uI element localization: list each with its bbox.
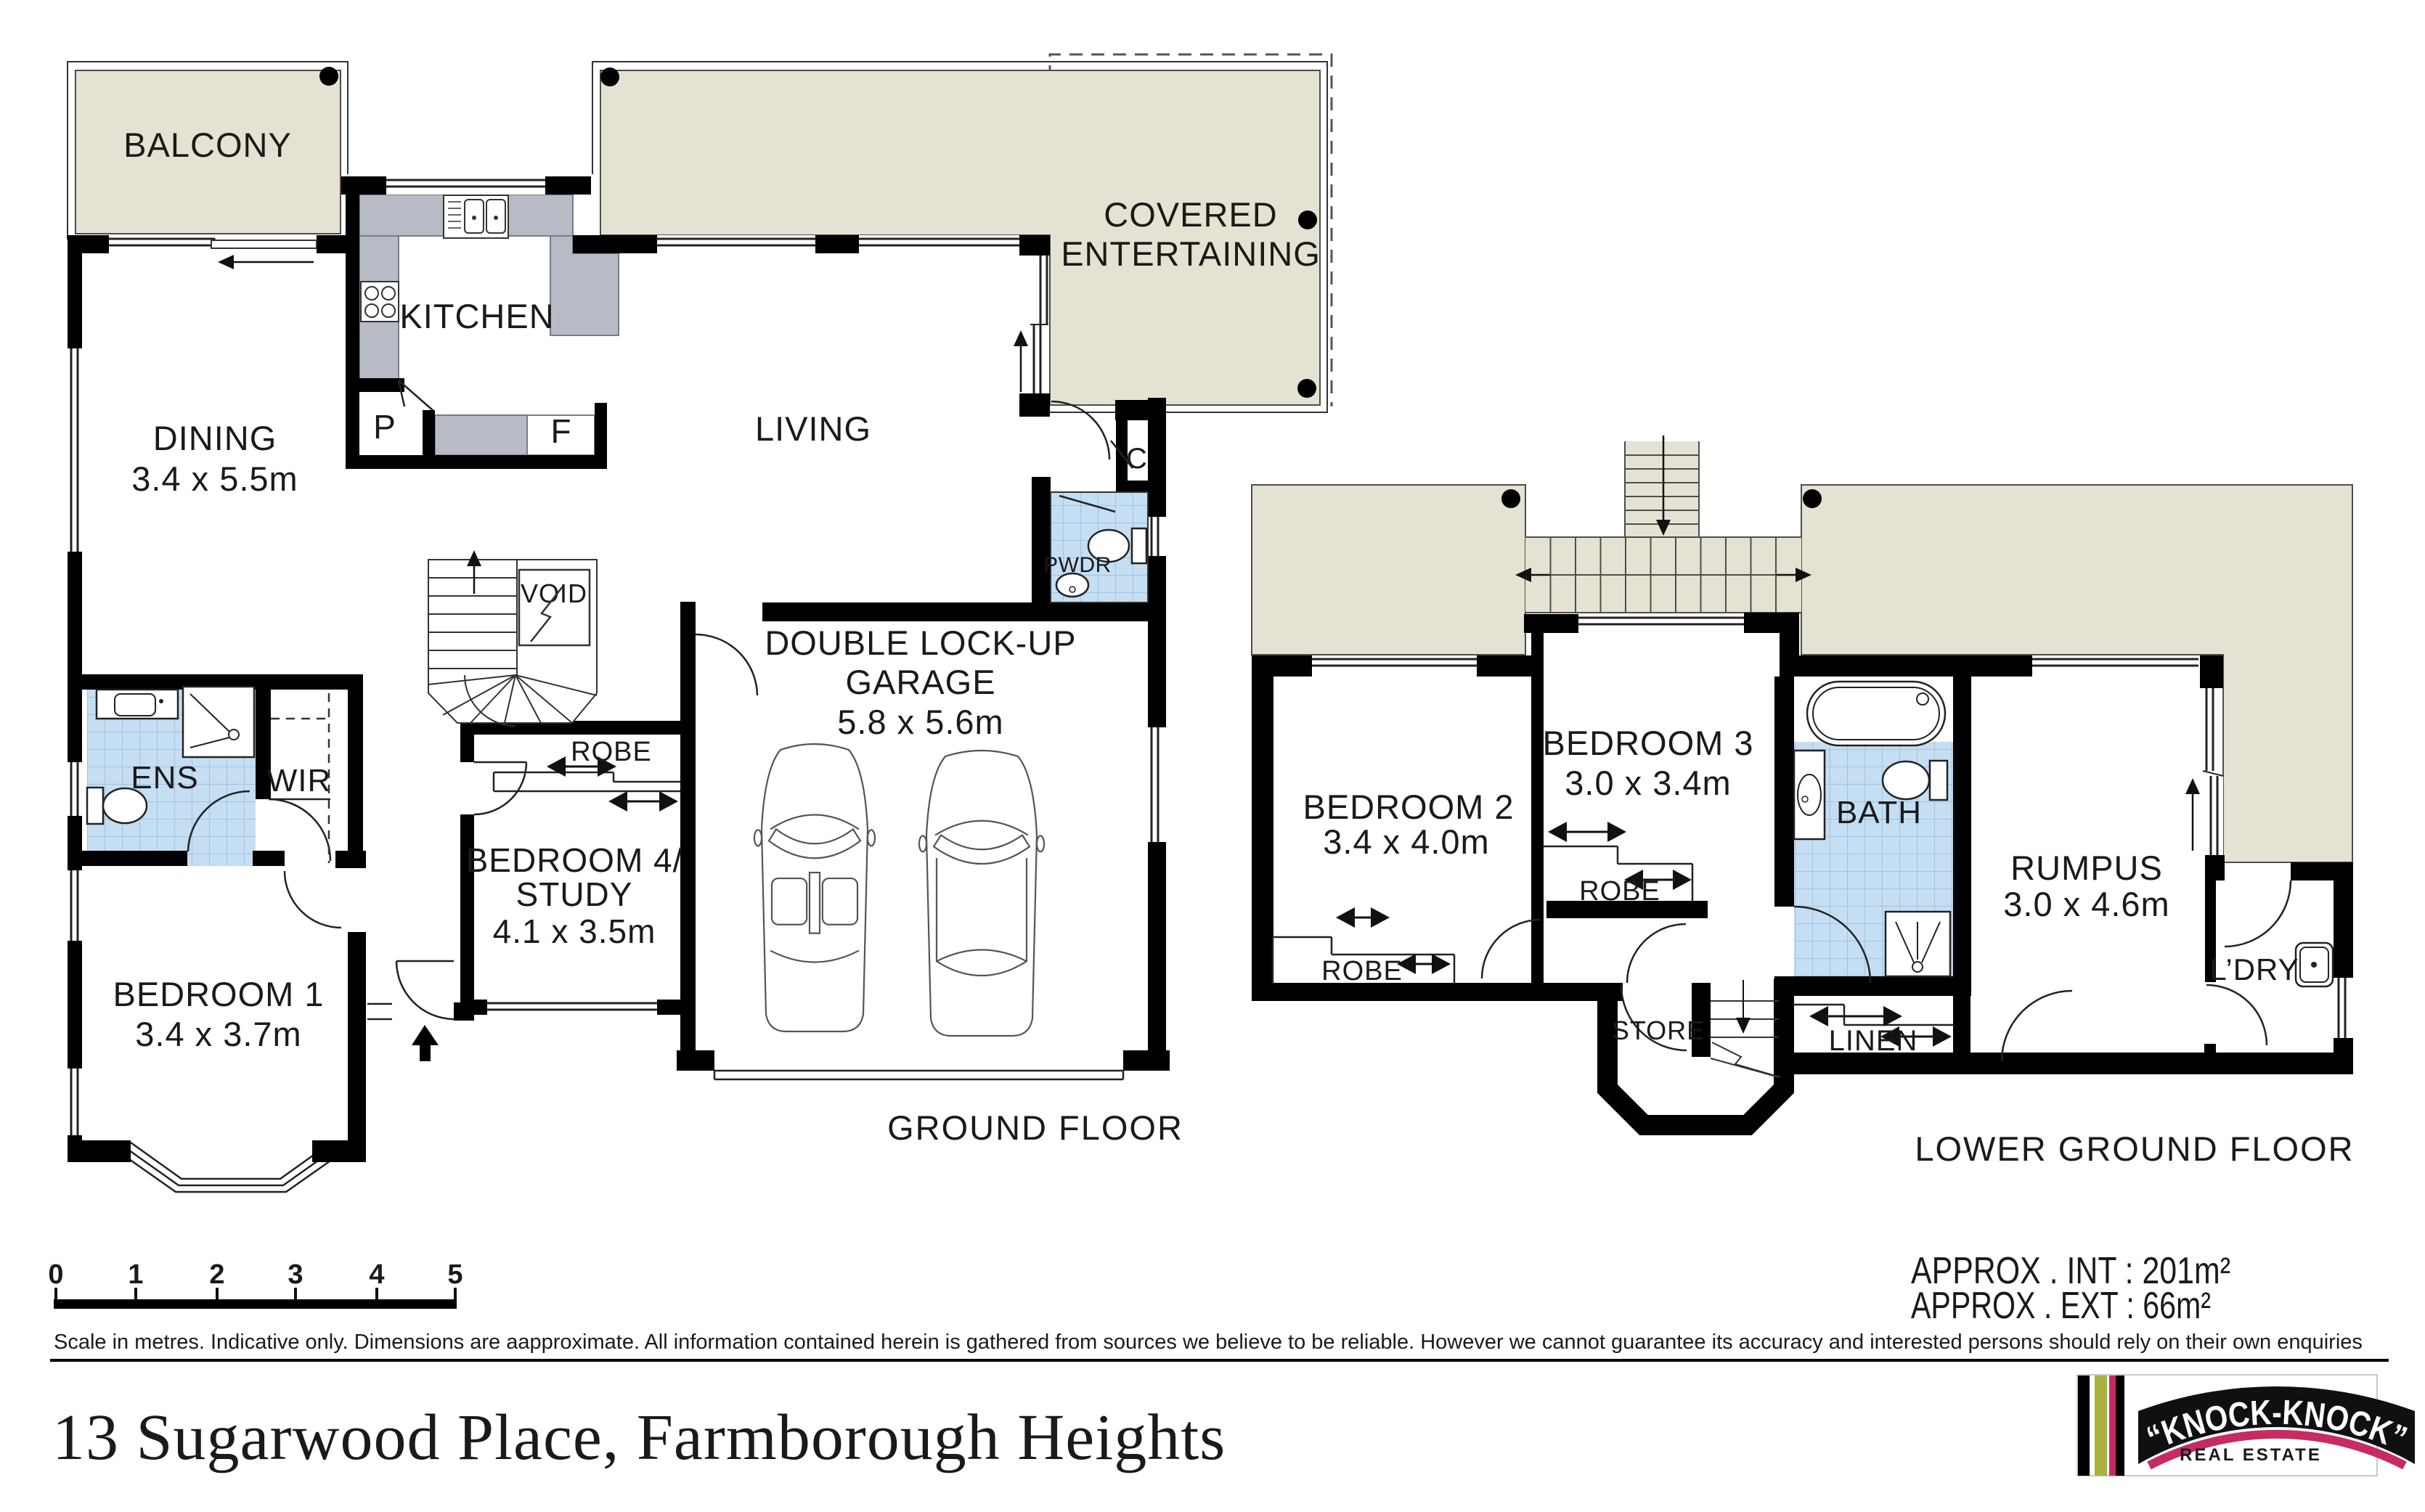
svg-text:ENS: ENS xyxy=(131,760,198,796)
svg-text:GROUND FLOOR: GROUND FLOOR xyxy=(887,1108,1183,1147)
svg-text:BEDROOM 1: BEDROOM 1 xyxy=(113,975,324,1013)
svg-text:STORE: STORE xyxy=(1612,1016,1705,1045)
svg-text:3: 3 xyxy=(288,1259,303,1290)
svg-text:STUDY: STUDY xyxy=(516,875,633,913)
svg-text:5.8 x 5.6m: 5.8 x 5.6m xyxy=(837,703,1003,741)
svg-text:5: 5 xyxy=(447,1259,462,1290)
svg-text:DINING: DINING xyxy=(153,419,277,457)
svg-text:LINEN: LINEN xyxy=(1829,1025,1918,1057)
svg-text:3.0 x 3.4m: 3.0 x 3.4m xyxy=(1565,764,1731,802)
svg-text:ROBE: ROBE xyxy=(1321,956,1403,986)
svg-text:KITCHEN: KITCHEN xyxy=(399,297,554,335)
svg-text:REAL ESTATE: REAL ESTATE xyxy=(2180,1445,2322,1465)
svg-text:WIR: WIR xyxy=(267,763,332,798)
svg-text:LOWER GROUND FLOOR: LOWER GROUND FLOOR xyxy=(1915,1129,2354,1168)
svg-text:BALCONY: BALCONY xyxy=(123,126,292,164)
svg-text:F: F xyxy=(550,412,571,450)
svg-text:DOUBLE LOCK-UP: DOUBLE LOCK-UP xyxy=(765,624,1076,662)
svg-text:ROBE: ROBE xyxy=(571,737,652,767)
svg-text:3.4 x 3.7m: 3.4 x 3.7m xyxy=(135,1015,301,1053)
svg-text:0: 0 xyxy=(48,1259,63,1290)
svg-text:LIVING: LIVING xyxy=(755,409,871,448)
svg-text:GARAGE: GARAGE xyxy=(845,663,995,701)
svg-text:13 Sugarwood Place, Farmboroug: 13 Sugarwood Place, Farmborough Heights xyxy=(52,1402,1226,1474)
svg-text:3.4 x 5.5m: 3.4 x 5.5m xyxy=(131,459,298,498)
svg-text:3.4 x 4.0m: 3.4 x 4.0m xyxy=(1323,822,1489,861)
svg-text:ROBE: ROBE xyxy=(1579,876,1660,907)
svg-text:P: P xyxy=(373,408,396,446)
svg-text:C: C xyxy=(1126,443,1148,475)
svg-text:4.1 x 3.5m: 4.1 x 3.5m xyxy=(493,912,656,950)
svg-text:BEDROOM 3: BEDROOM 3 xyxy=(1542,724,1753,762)
svg-text:Scale in metres. Indicative on: Scale in metres. Indicative only. Dimens… xyxy=(54,1331,2363,1354)
svg-text:2: 2 xyxy=(209,1259,224,1290)
svg-text:ENTERTAINING: ENTERTAINING xyxy=(1061,234,1321,273)
svg-text:PWDR: PWDR xyxy=(1043,553,1112,577)
svg-text:RUMPUS: RUMPUS xyxy=(2010,849,2163,887)
svg-text:1: 1 xyxy=(128,1259,143,1290)
svg-text:3.0 x 4.6m: 3.0 x 4.6m xyxy=(2003,885,2169,923)
svg-text:BEDROOM 4/: BEDROOM 4/ xyxy=(466,841,683,879)
svg-text:VOID: VOID xyxy=(521,579,587,608)
svg-text:COVERED: COVERED xyxy=(1104,195,1277,234)
svg-text:L’DRY: L’DRY xyxy=(2209,952,2299,986)
svg-text:4: 4 xyxy=(369,1259,384,1290)
svg-text:APPROX . EXT : 66m²: APPROX . EXT : 66m² xyxy=(1911,1285,2211,1327)
svg-text:BEDROOM 2: BEDROOM 2 xyxy=(1303,788,1514,826)
svg-text:BATH: BATH xyxy=(1836,795,1922,830)
